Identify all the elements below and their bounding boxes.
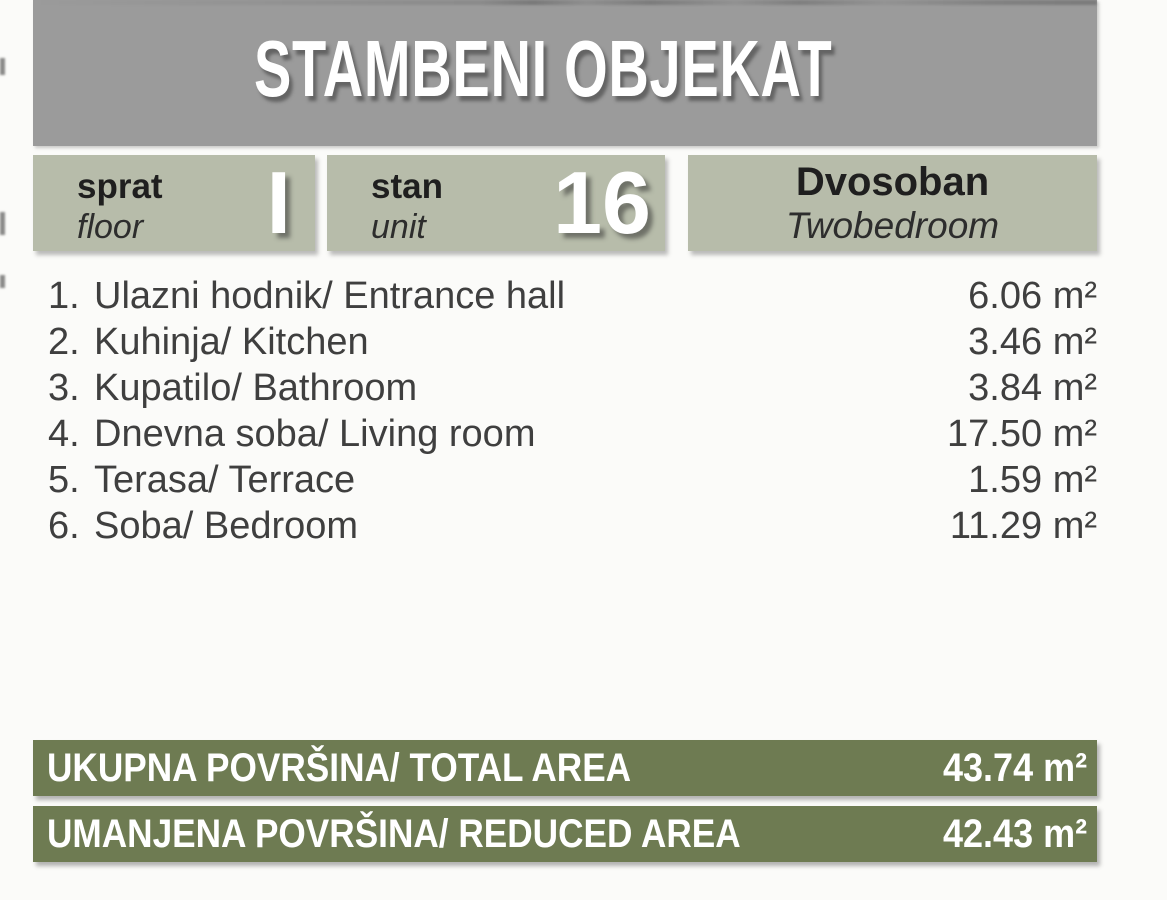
room-label: Dnevna soba/ Living room xyxy=(94,411,947,457)
reduced-area-bar: UMANJENA POVRŠINA/ REDUCED AREA 42.43 m² xyxy=(33,806,1097,862)
scan-artifact xyxy=(0,58,5,75)
room-number: 2. xyxy=(48,319,94,365)
room-number: 3. xyxy=(48,365,94,411)
page-title: STAMBENI OBJEKAT xyxy=(254,23,832,115)
unit-label-sr: stan xyxy=(371,166,443,207)
room-label: Terasa/ Terrace xyxy=(94,457,968,503)
total-area-label: UKUPNA POVRŠINA/ TOTAL AREA xyxy=(47,746,631,791)
room-number: 1. xyxy=(48,273,94,319)
room-label: Soba/ Bedroom xyxy=(94,503,950,549)
room-area: 3.84 m² xyxy=(968,365,1097,411)
total-area-bar: UKUPNA POVRŠINA/ TOTAL AREA 43.74 m² xyxy=(33,740,1097,796)
floor-label-sr: sprat xyxy=(77,166,163,207)
scan-artifact xyxy=(33,0,1097,5)
datasheet-page: STAMBENI OBJEKAT sprat floor I stan unit… xyxy=(0,0,1167,900)
scan-artifact xyxy=(0,212,5,235)
room-label: Kupatilo/ Bathroom xyxy=(94,365,968,411)
floor-label-en: floor xyxy=(77,207,163,247)
room-label: Kuhinja/ Kitchen xyxy=(94,319,968,365)
room-row: 6. Soba/ Bedroom 11.29 m² xyxy=(48,503,1097,549)
unit-value: 16 xyxy=(553,152,651,254)
floor-value: I xyxy=(267,152,291,254)
room-row: 5. Terasa/ Terrace 1.59 m² xyxy=(48,457,1097,503)
room-row: 1. Ulazni hodnik/ Entrance hall 6.06 m² xyxy=(48,273,1097,319)
floor-box: sprat floor I xyxy=(33,155,315,251)
room-row: 2. Kuhinja/ Kitchen 3.46 m² xyxy=(48,319,1097,365)
room-row: 4. Dnevna soba/ Living room 17.50 m² xyxy=(48,411,1097,457)
reduced-area-label: UMANJENA POVRŠINA/ REDUCED AREA xyxy=(47,812,741,857)
floor-labels: sprat floor xyxy=(77,166,163,247)
room-area: 11.29 m² xyxy=(950,503,1097,549)
room-label: Ulazni hodnik/ Entrance hall xyxy=(94,273,968,319)
unit-labels: stan unit xyxy=(371,166,443,247)
room-row: 3. Kupatilo/ Bathroom 3.84 m² xyxy=(48,365,1097,411)
room-area: 3.46 m² xyxy=(968,319,1097,365)
reduced-area-value: 42.43 m² xyxy=(943,812,1087,857)
unit-label-en: unit xyxy=(371,207,443,247)
scan-artifact xyxy=(0,275,5,288)
apartment-type-box: Dvosoban Twobedroom xyxy=(688,155,1097,251)
room-area: 17.50 m² xyxy=(947,411,1097,457)
header-band: STAMBENI OBJEKAT xyxy=(33,0,1097,146)
apartment-type-sr: Dvosoban xyxy=(796,159,989,205)
room-area: 6.06 m² xyxy=(968,273,1097,319)
room-number: 6. xyxy=(48,503,94,549)
room-area: 1.59 m² xyxy=(968,457,1097,503)
unit-box: stan unit 16 xyxy=(327,155,665,251)
room-number: 5. xyxy=(48,457,94,503)
total-area-value: 43.74 m² xyxy=(943,746,1087,791)
room-list: 1. Ulazni hodnik/ Entrance hall 6.06 m² … xyxy=(48,273,1097,549)
room-number: 4. xyxy=(48,411,94,457)
apartment-type-en: Twobedroom xyxy=(786,205,999,247)
